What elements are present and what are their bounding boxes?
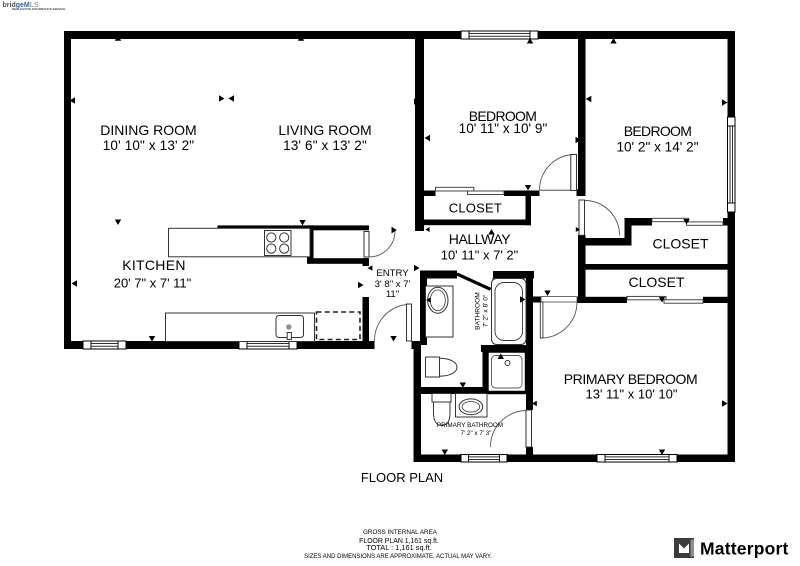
svg-text:10' 2" x 14' 2": 10' 2" x 14' 2"	[616, 140, 698, 155]
svg-text:LIVING ROOM: LIVING ROOM	[278, 122, 371, 138]
svg-text:13' 11" x 10' 10": 13' 11" x 10' 10"	[585, 387, 677, 402]
svg-text:7' 2" x 7' 3": 7' 2" x 7' 3"	[460, 430, 491, 437]
svg-text:REAL ESTATE INFORMATION SERVIC: REAL ESTATE INFORMATION SERVICE	[12, 7, 65, 11]
svg-text:GROSS INTERNAL AREA: GROSS INTERNAL AREA	[363, 529, 438, 536]
svg-text:BATHROOM: BATHROOM	[475, 292, 482, 330]
svg-text:SIZES AND DIMENSIONS ARE APPRO: SIZES AND DIMENSIONS ARE APPROXIMATE, AC…	[304, 554, 492, 560]
svg-text:CLOSET: CLOSET	[652, 236, 708, 252]
svg-text:DINING ROOM: DINING ROOM	[100, 122, 196, 138]
svg-text:7' 2" x 8' 0": 7' 2" x 8' 0"	[483, 294, 490, 327]
svg-text:10' 10" x 13' 2": 10' 10" x 13' 2"	[103, 138, 195, 153]
svg-text:3' 8" x 7': 3' 8" x 7'	[375, 279, 411, 290]
svg-text:CLOSET: CLOSET	[449, 200, 502, 215]
svg-text:CLOSET: CLOSET	[628, 274, 684, 290]
svg-text:13' 6" x 13' 2": 13' 6" x 13' 2"	[283, 138, 367, 153]
svg-text:BEDROOM: BEDROOM	[624, 123, 691, 139]
svg-text:10' 11" x 10' 9": 10' 11" x 10' 9"	[459, 121, 548, 136]
svg-text:PRIMARY BEDROOM: PRIMARY BEDROOM	[564, 371, 698, 387]
svg-text:PRIMARY BATHROOM: PRIMARY BATHROOM	[437, 422, 503, 429]
svg-text:FLOOR PLAN: FLOOR PLAN	[361, 470, 443, 485]
svg-text:10' 11" x 7' 2": 10' 11" x 7' 2"	[441, 248, 519, 263]
svg-text:HALLWAY: HALLWAY	[449, 231, 512, 247]
svg-text:TOTAL : 1,161 sq.ft.: TOTAL : 1,161 sq.ft.	[366, 543, 432, 552]
svg-text:20' 7" x 7' 11": 20' 7" x 7' 11"	[114, 275, 192, 290]
svg-text:ENTRY: ENTRY	[376, 268, 409, 279]
svg-text:Matterport: Matterport	[700, 539, 789, 559]
svg-text:KITCHEN: KITCHEN	[122, 257, 186, 273]
svg-text:11": 11"	[386, 289, 399, 300]
